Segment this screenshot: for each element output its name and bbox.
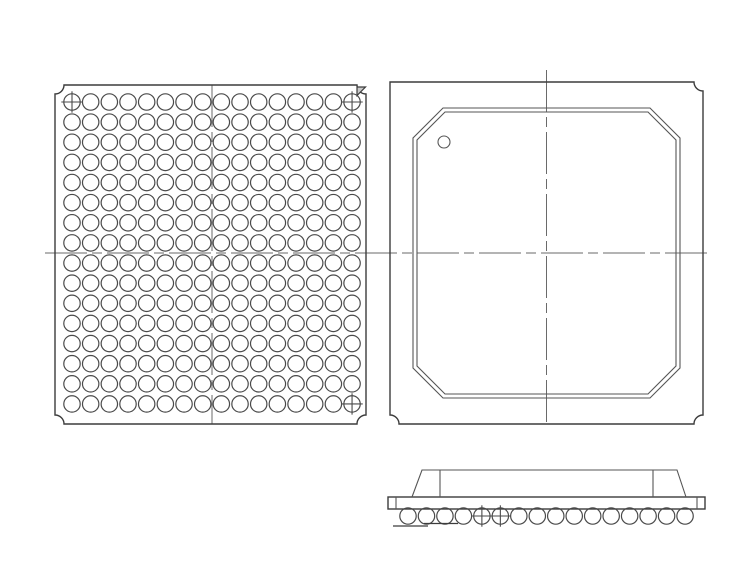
solder-ball (64, 194, 80, 210)
solder-ball (232, 235, 248, 251)
solder-ball (194, 295, 210, 311)
solder-ball (288, 215, 304, 231)
solder-ball (176, 315, 192, 331)
solder-ball (157, 315, 173, 331)
solder-ball (120, 134, 136, 150)
solder-ball (64, 295, 80, 311)
solder-ball (101, 174, 117, 190)
solder-ball (157, 396, 173, 412)
solder-ball (82, 255, 98, 271)
solder-ball (82, 134, 98, 150)
solder-ball (344, 134, 360, 150)
solder-ball (232, 355, 248, 371)
solder-ball (176, 355, 192, 371)
solder-ball (64, 114, 80, 130)
solder-ball (157, 355, 173, 371)
solder-ball (232, 376, 248, 392)
solder-ball (307, 295, 323, 311)
solder-ball (138, 275, 154, 291)
solder-ball (194, 134, 210, 150)
solder-ball (138, 396, 154, 412)
solder-ball (288, 315, 304, 331)
solder-ball (194, 94, 210, 110)
solder-ball (120, 275, 136, 291)
solder-ball (82, 295, 98, 311)
solder-ball (288, 335, 304, 351)
solder-ball (120, 215, 136, 231)
solder-ball (325, 94, 341, 110)
solder-ball (120, 154, 136, 170)
solder-ball (307, 154, 323, 170)
solder-ball (138, 215, 154, 231)
solder-ball (325, 355, 341, 371)
solder-ball (101, 275, 117, 291)
solder-ball (269, 94, 285, 110)
solder-ball (269, 335, 285, 351)
solder-ball (511, 508, 527, 524)
solder-ball (101, 194, 117, 210)
solder-ball (269, 295, 285, 311)
solder-ball (325, 275, 341, 291)
solder-ball (640, 508, 656, 524)
solder-ball (288, 174, 304, 190)
solder-ball (269, 315, 285, 331)
solder-ball (64, 355, 80, 371)
solder-ball (232, 335, 248, 351)
solder-ball (157, 194, 173, 210)
solder-ball (269, 235, 285, 251)
solder-ball (176, 94, 192, 110)
solder-ball (251, 376, 267, 392)
solder-ball (101, 335, 117, 351)
solder-ball (325, 174, 341, 190)
solder-ball (325, 315, 341, 331)
mold-cap-profile (412, 470, 686, 497)
solder-ball (325, 235, 341, 251)
solder-ball (325, 215, 341, 231)
solder-ball (269, 255, 285, 271)
solder-ball (251, 174, 267, 190)
solder-ball (176, 295, 192, 311)
solder-ball (344, 235, 360, 251)
solder-ball (232, 174, 248, 190)
solder-ball (232, 114, 248, 130)
solder-ball (251, 114, 267, 130)
solder-ball (101, 134, 117, 150)
substrate-bar (388, 497, 705, 509)
solder-ball (194, 275, 210, 291)
solder-ball (194, 255, 210, 271)
solder-ball (251, 235, 267, 251)
solder-ball (194, 355, 210, 371)
solder-ball (344, 355, 360, 371)
centerlines (45, 70, 712, 424)
solder-ball (101, 154, 117, 170)
solder-ball (288, 235, 304, 251)
solder-ball (232, 215, 248, 231)
solder-ball (288, 376, 304, 392)
solder-ball (176, 275, 192, 291)
solder-ball (176, 174, 192, 190)
solder-ball (418, 508, 434, 524)
solder-ball (213, 396, 229, 412)
solder-ball (64, 275, 80, 291)
solder-ball (251, 154, 267, 170)
solder-ball (288, 295, 304, 311)
solder-ball (455, 508, 471, 524)
solder-ball (307, 275, 323, 291)
solder-ball (82, 335, 98, 351)
solder-ball (344, 215, 360, 231)
solder-ball (64, 154, 80, 170)
solder-ball (176, 235, 192, 251)
side-view (388, 470, 705, 527)
solder-ball (307, 235, 323, 251)
solder-ball (325, 396, 341, 412)
solder-ball (344, 376, 360, 392)
solder-ball (138, 134, 154, 150)
solder-ball (325, 295, 341, 311)
solder-ball (120, 376, 136, 392)
solder-ball (138, 194, 154, 210)
solder-ball (120, 94, 136, 110)
solder-ball (307, 174, 323, 190)
solder-ball (120, 235, 136, 251)
solder-ball (101, 94, 117, 110)
solder-ball (138, 355, 154, 371)
solder-ball (288, 355, 304, 371)
solder-ball (157, 94, 173, 110)
solder-ball (157, 255, 173, 271)
solder-ball (232, 194, 248, 210)
solder-ball (269, 194, 285, 210)
solder-ball (120, 174, 136, 190)
solder-ball (658, 508, 674, 524)
solder-ball (325, 376, 341, 392)
solder-ball (344, 174, 360, 190)
solder-ball (120, 355, 136, 371)
solder-ball (82, 235, 98, 251)
solder-ball (344, 295, 360, 311)
solder-ball (325, 134, 341, 150)
solder-ball (307, 114, 323, 130)
solder-ball (120, 295, 136, 311)
solder-ball (269, 355, 285, 371)
solder-ball (138, 335, 154, 351)
solder-ball (232, 275, 248, 291)
solder-ball (82, 396, 98, 412)
solder-ball (251, 94, 267, 110)
solder-ball (269, 275, 285, 291)
solder-ball (344, 194, 360, 210)
solder-ball (344, 154, 360, 170)
solder-ball (213, 194, 229, 210)
solder-ball (232, 396, 248, 412)
solder-ball (101, 376, 117, 392)
solder-ball (157, 174, 173, 190)
solder-ball (138, 295, 154, 311)
solder-ball (176, 335, 192, 351)
solder-ball (120, 194, 136, 210)
solder-ball (101, 355, 117, 371)
package-drawing-page (0, 0, 754, 576)
solder-ball (288, 255, 304, 271)
solder-ball (82, 355, 98, 371)
solder-ball (82, 174, 98, 190)
solder-ball (251, 275, 267, 291)
solder-ball (529, 508, 545, 524)
solder-ball (64, 134, 80, 150)
solder-ball (101, 315, 117, 331)
solder-ball (138, 255, 154, 271)
solder-ball (194, 154, 210, 170)
solder-ball (288, 396, 304, 412)
solder-ball (213, 134, 229, 150)
solder-ball (232, 315, 248, 331)
solder-ball (344, 275, 360, 291)
solder-ball (138, 315, 154, 331)
solder-ball (157, 114, 173, 130)
solder-ball (213, 275, 229, 291)
solder-ball (64, 215, 80, 231)
solder-ball (232, 94, 248, 110)
solder-ball (307, 315, 323, 331)
solder-ball (288, 194, 304, 210)
solder-ball (120, 396, 136, 412)
solder-ball (232, 154, 248, 170)
solder-ball (621, 508, 637, 524)
solder-ball (307, 215, 323, 231)
solder-ball (251, 315, 267, 331)
solder-ball (138, 114, 154, 130)
solder-ball (64, 174, 80, 190)
solder-ball (64, 235, 80, 251)
solder-ball (677, 508, 693, 524)
solder-ball (325, 255, 341, 271)
solder-ball (82, 275, 98, 291)
solder-ball (82, 215, 98, 231)
solder-ball (157, 235, 173, 251)
solder-ball (213, 154, 229, 170)
solder-ball (101, 396, 117, 412)
solder-ball (194, 194, 210, 210)
solder-ball (269, 376, 285, 392)
solder-ball (64, 335, 80, 351)
solder-ball (120, 335, 136, 351)
solder-ball (138, 376, 154, 392)
solder-ball (82, 94, 98, 110)
solder-ball (213, 94, 229, 110)
solder-ball (213, 215, 229, 231)
solder-ball (307, 335, 323, 351)
solder-ball (176, 376, 192, 392)
solder-ball (307, 194, 323, 210)
solder-ball (251, 194, 267, 210)
solder-ball (251, 396, 267, 412)
solder-ball (157, 376, 173, 392)
solder-ball (269, 396, 285, 412)
solder-ball (307, 94, 323, 110)
solder-ball (82, 114, 98, 130)
solder-ball (307, 355, 323, 371)
solder-ball (325, 335, 341, 351)
solder-ball (101, 255, 117, 271)
solder-ball (157, 134, 173, 150)
solder-ball (194, 335, 210, 351)
solder-ball (251, 295, 267, 311)
solder-ball (82, 315, 98, 331)
solder-ball (269, 134, 285, 150)
solder-ball (101, 295, 117, 311)
solder-ball (176, 255, 192, 271)
solder-ball (194, 396, 210, 412)
solder-ball (120, 315, 136, 331)
solder-ball (64, 396, 80, 412)
solder-ball (269, 215, 285, 231)
solder-ball (437, 508, 453, 524)
solder-ball (288, 134, 304, 150)
solder-ball (344, 335, 360, 351)
solder-ball (176, 396, 192, 412)
solder-ball (213, 295, 229, 311)
solder-ball (120, 255, 136, 271)
solder-ball (82, 194, 98, 210)
solder-ball (64, 255, 80, 271)
solder-ball (307, 134, 323, 150)
solder-ball (288, 154, 304, 170)
solder-ball (213, 114, 229, 130)
solder-ball (194, 215, 210, 231)
solder-ball (232, 255, 248, 271)
solder-ball (288, 94, 304, 110)
solder-ball (566, 508, 582, 524)
solder-ball (157, 275, 173, 291)
solder-ball (101, 215, 117, 231)
bottom-view (55, 85, 366, 424)
solder-ball (344, 315, 360, 331)
solder-ball (344, 255, 360, 271)
solder-ball (251, 255, 267, 271)
solder-ball (176, 134, 192, 150)
solder-ball (585, 508, 601, 524)
solder-ball (64, 376, 80, 392)
solder-ball (269, 154, 285, 170)
solder-ball (120, 114, 136, 130)
solder-ball (176, 194, 192, 210)
solder-ball (232, 134, 248, 150)
solder-ball (307, 255, 323, 271)
solder-ball (232, 295, 248, 311)
solder-ball (603, 508, 619, 524)
solder-ball (194, 235, 210, 251)
solder-ball (325, 154, 341, 170)
solder-ball (213, 315, 229, 331)
solder-ball (251, 335, 267, 351)
solder-ball (307, 396, 323, 412)
solder-ball (213, 255, 229, 271)
solder-ball (548, 508, 564, 524)
solder-ball (213, 376, 229, 392)
solder-ball (101, 114, 117, 130)
pin1-dot (438, 136, 450, 148)
solder-ball (307, 376, 323, 392)
solder-ball (176, 114, 192, 130)
solder-ball (269, 174, 285, 190)
solder-ball (400, 508, 416, 524)
solder-ball (251, 134, 267, 150)
solder-ball (138, 174, 154, 190)
solder-ball (82, 376, 98, 392)
solder-ball (101, 235, 117, 251)
solder-ball (269, 114, 285, 130)
solder-ball (64, 315, 80, 331)
package-drawing (0, 0, 754, 576)
solder-ball (194, 174, 210, 190)
solder-ball (213, 235, 229, 251)
solder-ball (325, 114, 341, 130)
solder-ball (194, 376, 210, 392)
solder-ball (176, 154, 192, 170)
solder-ball (157, 154, 173, 170)
solder-ball (251, 215, 267, 231)
solder-ball (288, 114, 304, 130)
solder-ball (157, 335, 173, 351)
solder-ball (213, 174, 229, 190)
solder-ball (288, 275, 304, 291)
solder-ball (176, 215, 192, 231)
solder-ball (194, 114, 210, 130)
solder-ball (251, 355, 267, 371)
solder-ball (138, 235, 154, 251)
solder-ball (157, 215, 173, 231)
solder-ball (325, 194, 341, 210)
solder-ball (138, 94, 154, 110)
solder-ball (82, 154, 98, 170)
solder-ball (194, 315, 210, 331)
solder-ball (213, 355, 229, 371)
solder-ball (138, 154, 154, 170)
solder-ball (344, 114, 360, 130)
solder-ball (157, 295, 173, 311)
solder-ball (213, 335, 229, 351)
